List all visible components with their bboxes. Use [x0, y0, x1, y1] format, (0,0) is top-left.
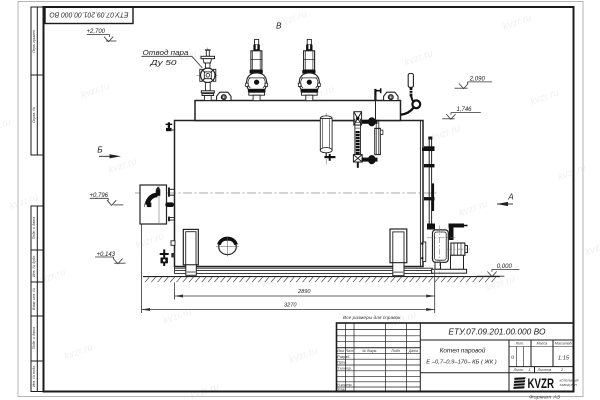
svg-text:Утв.: Утв.: [337, 388, 345, 392]
svg-text:Лит.: Лит.: [515, 342, 524, 346]
svg-text:и: и: [511, 355, 514, 361]
svg-text:1,746: 1,746: [457, 107, 473, 113]
svg-text:Б: Б: [97, 146, 103, 155]
svg-text:1:15: 1:15: [558, 356, 570, 362]
svg-text:Отвод пара: Отвод пара: [143, 49, 189, 57]
svg-text:Взам. инв. №: Взам. инв. №: [32, 288, 36, 310]
svg-text:KVZR: KVZR: [528, 376, 555, 391]
svg-text:Перв. примен.: Перв. примен.: [32, 29, 36, 53]
svg-text:Лист: Лист: [513, 368, 524, 372]
svg-text:Все размеры для справок: Все размеры для справок: [343, 315, 401, 321]
svg-text:Подп. и дата: Подп. и дата: [32, 217, 36, 240]
svg-text:+2,700: +2,700: [87, 29, 106, 35]
svg-text:Инв. № подл.: Инв. № подл.: [32, 365, 36, 387]
svg-text:Пров.: Пров.: [337, 361, 346, 365]
svg-text:Масса: Масса: [537, 342, 548, 346]
svg-text:Ду 50: Ду 50: [149, 60, 177, 67]
svg-text:Инв. № дубл.: Инв. № дубл.: [32, 255, 36, 277]
svg-text:№ докум.: № докум.: [362, 349, 377, 353]
svg-text:3270: 3270: [284, 303, 297, 309]
svg-text:Лист: Лист: [344, 349, 354, 353]
svg-text:Подп.: Подп.: [391, 349, 400, 353]
svg-text:ЗАВОД РЭП: ЗАВОД РЭП: [560, 383, 578, 387]
svg-text:+0,143: +0,143: [97, 252, 116, 258]
svg-text:1: 1: [529, 368, 531, 372]
svg-text:Листов: Листов: [537, 368, 552, 372]
svg-text:Разраб.: Разраб.: [337, 355, 350, 359]
svg-text:В: В: [276, 21, 282, 30]
svg-text:Н.контр.: Н.контр.: [337, 383, 352, 387]
svg-text:А: А: [507, 192, 514, 201]
svg-text:0,000: 0,000: [497, 264, 513, 270]
svg-text:Дата: Дата: [408, 349, 418, 353]
svg-text:КОТЕЛЬНЫЙ: КОТЕЛЬНЫЙ: [560, 379, 580, 383]
svg-text:Е –0,7–0,9–170– КБ ( ЖК ): Е –0,7–0,9–170– КБ ( ЖК ): [426, 360, 496, 366]
svg-text:ЕТУ.07.09.201.00.000 ВО: ЕТУ.07.09.201.00.000 ВО: [448, 327, 546, 337]
svg-text:ЕТУ.07.09.201.00.000 ВО: ЕТУ.07.09.201.00.000 ВО: [49, 10, 129, 17]
svg-text:Подп. и дата: Подп. и дата: [32, 327, 36, 350]
svg-text:Т.контр.: Т.контр.: [337, 366, 352, 370]
svg-text:Формат А3: Формат А3: [529, 395, 560, 400]
svg-text:2890: 2890: [297, 289, 311, 295]
svg-text:+0,796: +0,796: [90, 193, 109, 199]
svg-text:Изм.: Изм.: [337, 349, 344, 353]
svg-text:Справ. №: Справ. №: [32, 107, 36, 123]
svg-text:Масштаб: Масштаб: [555, 342, 573, 346]
svg-text:2,090: 2,090: [469, 76, 486, 82]
svg-text:Котел паровой: Котел паровой: [440, 347, 486, 355]
